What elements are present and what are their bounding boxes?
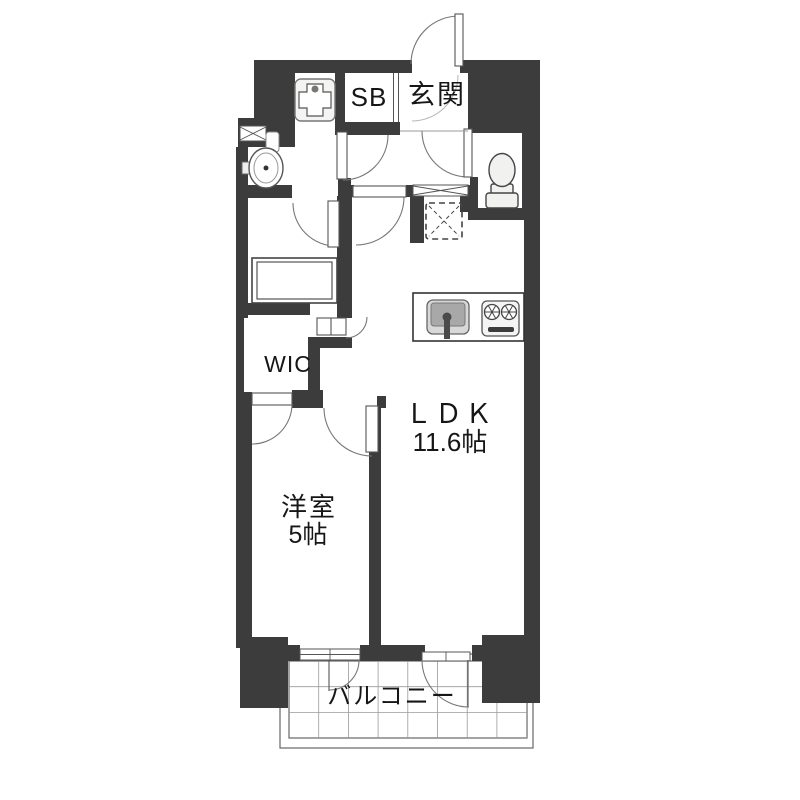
kitchen-sink-icon (427, 300, 469, 339)
wall (236, 318, 244, 392)
balcony-label: バルコニー (327, 683, 457, 710)
washing-machine-pan-icon (295, 79, 335, 121)
wall (522, 125, 540, 220)
wall (482, 635, 540, 703)
ldk-door-leaf (353, 186, 406, 197)
western-room-label: 洋室 (281, 492, 337, 522)
wall (410, 196, 424, 243)
wall (468, 60, 540, 133)
washroom-door-leaf (337, 132, 347, 179)
small-window-icon (240, 126, 266, 141)
stove-icon (482, 301, 519, 336)
wall (308, 337, 352, 348)
wall (468, 208, 524, 220)
wall (250, 645, 300, 661)
bathtub-icon (252, 258, 337, 303)
toilet-door-leaf (464, 129, 472, 177)
genkan-label: 玄関 (408, 80, 466, 110)
ldk-size-label: 11.6帖 (413, 427, 488, 457)
ldk-label: ＬＤＫ (405, 399, 495, 429)
western-room-door-leaf (366, 406, 378, 452)
floor-plan-page: 玄関 SB WIC ＬＤＫ 11.6帖 洋室 5帖 バルコニー (0, 0, 800, 800)
kitchen-counter (413, 293, 524, 341)
wic-label: WIC (264, 351, 312, 377)
wall (524, 208, 540, 645)
transom-window-icon (413, 185, 468, 196)
wall (236, 392, 252, 648)
entrance-door-swing (411, 16, 459, 64)
entrance-door-leaf (455, 14, 463, 66)
bathroom-door-leaf (328, 201, 339, 247)
floor-plan-drawing: 玄関 SB WIC ＬＤＫ 11.6帖 洋室 5帖 バルコニー (0, 0, 800, 800)
wall (292, 390, 323, 408)
wall (238, 303, 310, 315)
western-room-size-label: 5帖 (289, 521, 328, 549)
wic-door-leaf (252, 393, 292, 405)
shoe-box-label: SB (351, 82, 388, 112)
